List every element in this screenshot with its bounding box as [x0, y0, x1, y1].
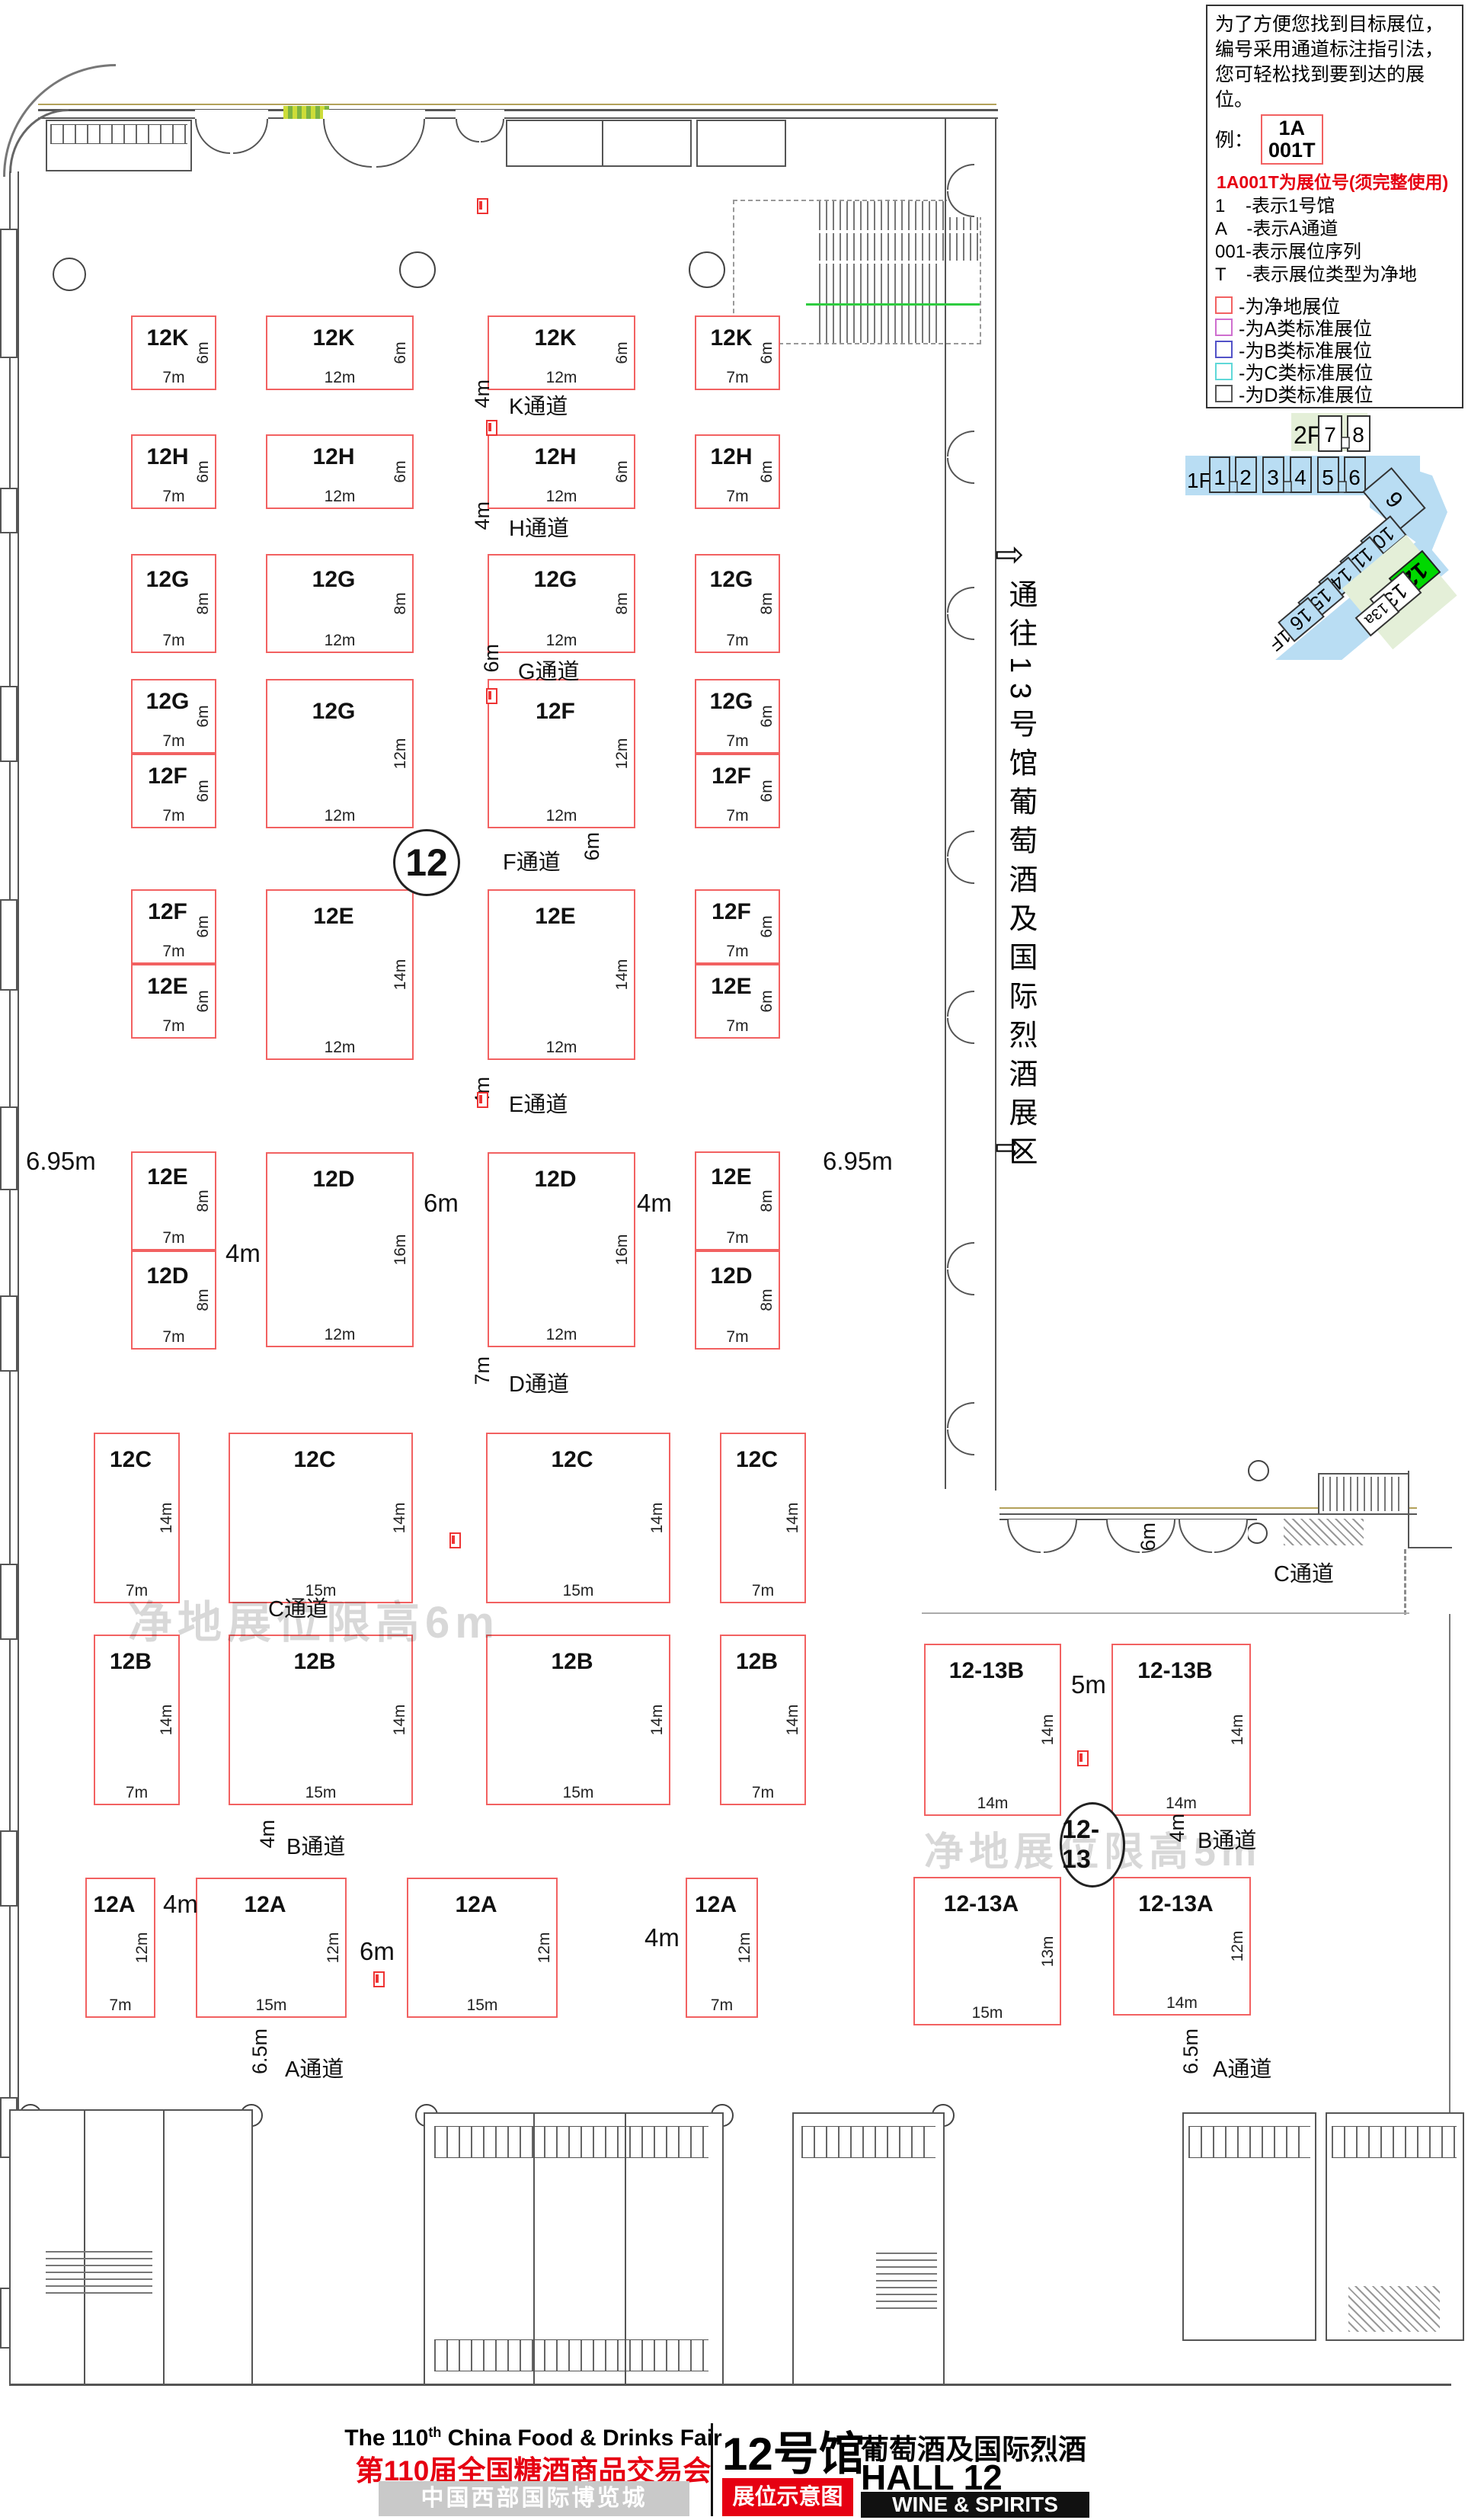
minimap-1f-label: 1F: [1187, 469, 1212, 492]
fire-note: 消防地井严禁遮挡: [1233, 403, 1373, 409]
footer-banner: The 110th China Food & Drinks Fair 第110届…: [0, 2417, 1468, 2520]
booth-id: 12-13B004T: [1113, 1659, 1237, 1683]
booth-12K-041T[interactable]: 12K041T12m6m: [488, 315, 635, 390]
dimension-label: 6m: [480, 644, 504, 673]
booth-width-dimension: 7m: [696, 943, 779, 961]
svg-text:4: 4: [1294, 466, 1306, 489]
fire-hydrant-icon: [477, 1092, 488, 1108]
booth-12H-038T[interactable]: 12H038T7m6m: [695, 434, 780, 509]
booth-12A-002T[interactable]: 12A002T15m12m: [196, 1878, 347, 2018]
main-entrance-door[interactable]: [323, 110, 425, 171]
booth-12C-012T[interactable]: 12C012T7m14m: [720, 1433, 806, 1603]
minimap-hall-4[interactable]: 4: [1290, 457, 1311, 492]
booth-id: 12E018T: [696, 1165, 766, 1189]
minimap-hall-8[interactable]: 8: [1348, 416, 1370, 451]
venue-name: 中国西部国际博览城: [379, 2481, 689, 2516]
booth-id: 12-13A002T: [1115, 1892, 1237, 1916]
corridor-door[interactable]: [1007, 1519, 1077, 1555]
aisle-label: B通道: [286, 1829, 345, 1861]
booth-type-swatch: [1215, 385, 1233, 402]
dimension-label: 4m: [225, 1239, 261, 1268]
booth-id: 12A004T: [687, 1893, 744, 1916]
booth-id: 12C012T: [721, 1448, 792, 1471]
svg-text:2: 2: [1239, 466, 1252, 489]
height-limit-watermark: 净地展位限高5m: [924, 1820, 1262, 1877]
aisle-label: D通道: [509, 1366, 569, 1398]
dimension-label: 6m: [360, 1937, 395, 1966]
booth-12E-023T[interactable]: 12E023T7m6m: [695, 964, 780, 1039]
legend-code-lines: 1 -表示1号馆A -表示A通道001-表示展位序列T -表示展位类型为净地: [1215, 195, 1454, 287]
booth-id: 12K042T: [696, 326, 766, 350]
booth-width-dimension: 7m: [133, 369, 215, 387]
booth-depth-dimension: 6m: [194, 705, 213, 727]
booth-width-dimension: 15m: [488, 1784, 669, 1802]
booth-width-dimension: 7m: [696, 732, 779, 751]
dimension-label: 6.5m: [1179, 2028, 1203, 2074]
hall-door[interactable]: [947, 431, 994, 484]
booth-type-swatch: [1215, 319, 1233, 336]
fire-hydrant-icon: [1077, 1750, 1089, 1766]
hall-door[interactable]: [947, 1402, 994, 1455]
booth-depth-dimension: 14m: [648, 1705, 667, 1736]
footer-divider: [711, 2423, 713, 2516]
booth-id: 12A001T: [87, 1893, 142, 1916]
dimension-label: 6m: [1137, 1523, 1160, 1551]
booth-width-dimension: 12m: [489, 632, 634, 650]
booth-12A-001T[interactable]: 12A001T7m12m: [85, 1878, 155, 2018]
booth-width-dimension: 12m: [489, 1039, 634, 1057]
venue-minimap[interactable]: 2F 7 8 1F 1 2 3 4 5: [1179, 408, 1468, 660]
booth-12E-014T[interactable]: 12E014T7m8m: [131, 1151, 216, 1250]
booth-type-swatch: [1215, 363, 1233, 380]
booth-id: 12G033T: [489, 568, 622, 591]
booth-depth-dimension: 8m: [194, 1190, 213, 1212]
booth-depth-dimension: 14m: [613, 959, 632, 991]
booth-width-dimension: 7m: [133, 1017, 215, 1036]
booth-depth-dimension: 14m: [158, 1705, 176, 1736]
fire-hydrant-icon: [373, 1971, 385, 1987]
booth-width-dimension: 15m: [915, 2004, 1060, 2022]
svg-text:1: 1: [1214, 466, 1226, 489]
booth-depth-dimension: 6m: [758, 780, 776, 802]
corridor-door[interactable]: [1106, 1519, 1248, 1555]
booth-depth-dimension: 6m: [194, 460, 213, 482]
booth-depth-dimension: 8m: [758, 1190, 776, 1212]
booth-12-13A-002T[interactable]: 12-13A002T14m12m: [1113, 1877, 1251, 2016]
booth-id: 12B005T: [95, 1650, 166, 1673]
booth-id: 12H035T: [133, 445, 203, 469]
booth-width-dimension: 15m: [230, 1784, 411, 1802]
hall-door[interactable]: [947, 1242, 994, 1295]
floor-plan-canvas: 12K039T7m6m12K040T12m6m12K041T12m6m12K04…: [0, 0, 1468, 2520]
booth-type-swatch: [1215, 296, 1233, 314]
aisle-label: H通道: [509, 511, 569, 543]
dimension-label: 6.5m: [248, 2028, 272, 2074]
dimension-label: 6.95m: [823, 1147, 893, 1176]
booth-id: 12G030T: [696, 690, 766, 713]
direction-arrow-up: ⇨: [995, 533, 1025, 575]
booth-depth-dimension: 13m: [1039, 1936, 1057, 1967]
booth-depth-dimension: 14m: [391, 1503, 409, 1534]
booth-12-13B-004T[interactable]: 12-13B004T14m14m: [1111, 1644, 1251, 1816]
legend-sample-booth: 1A 001T: [1261, 114, 1323, 165]
entrance-mat: [283, 106, 329, 119]
hall-door[interactable]: [947, 587, 994, 640]
booth-width-dimension: 7m: [87, 1996, 154, 2015]
booth-depth-dimension: 6m: [758, 990, 776, 1012]
legend-code-line: T -表示展位类型为净地: [1215, 264, 1454, 287]
booth-width-dimension: 12m: [489, 807, 634, 825]
booth-id: 12E022T: [489, 905, 622, 928]
booth-id: 12A003T: [408, 1893, 544, 1916]
fire-hydrant-icon: [449, 1532, 461, 1548]
booth-id: 12B007T: [488, 1650, 657, 1673]
legend-intro: 为了方便您找到目标展位，编号采用通道标注指引法，您可轻松找到要到达的展位。: [1215, 12, 1454, 113]
booth-width-dimension: 12m: [489, 1326, 634, 1344]
booth-12E-018T[interactable]: 12E018T7m8m: [695, 1151, 780, 1250]
booth-depth-dimension: 6m: [392, 341, 410, 363]
booth-depth-dimension: 14m: [648, 1503, 667, 1534]
booth-12F-028T[interactable]: 12F028T12m12m: [488, 679, 635, 828]
booth-width-dimension: 12m: [489, 488, 634, 506]
booth-12-13A-001T-A[interactable]: 12-13A001T-A15m13m: [913, 1877, 1061, 2025]
booth-id: 12C010T: [230, 1448, 399, 1471]
booth-depth-dimension: 14m: [158, 1503, 176, 1534]
booth-width-dimension: 12m: [267, 488, 412, 506]
booth-12G-027T[interactable]: 12G027T12m12m: [266, 679, 414, 828]
booth-12B-008T[interactable]: 12B008T7m14m: [720, 1635, 806, 1805]
booth-12G-032T[interactable]: 12G032T12m8m: [266, 554, 414, 653]
booth-width-dimension: 7m: [133, 943, 215, 961]
legend-booth-number-note: 1A001T为展位号(须完整使用): [1217, 168, 1454, 194]
svg-text:3: 3: [1267, 466, 1279, 489]
double-door[interactable]: [195, 110, 268, 157]
booth-12G-034T[interactable]: 12G034T7m8m: [695, 554, 780, 653]
booth-width-dimension: 7m: [133, 807, 215, 825]
dimension-label: 6m: [580, 832, 604, 861]
booth-12D-013T[interactable]: 12D013T7m8m: [131, 1250, 216, 1350]
booth-width-dimension: 15m: [488, 1582, 669, 1600]
booth-width-dimension: 7m: [696, 488, 779, 506]
booth-id: 12-13B003T: [926, 1659, 1047, 1683]
booth-12F-020T[interactable]: 12F020T7m6m: [131, 889, 216, 964]
booth-width-dimension: 7m: [696, 369, 779, 387]
legend-key-row: -为D类标准展位: [1215, 383, 1454, 405]
booth-depth-dimension: 6m: [758, 915, 776, 937]
booth-id: 12F029T: [696, 764, 766, 788]
booth-depth-dimension: 6m: [392, 460, 410, 482]
booth-depth-dimension: 12m: [736, 1932, 754, 1964]
minimap-hall-2[interactable]: 2: [1236, 457, 1256, 492]
hall-title-chinese: 12号馆: [722, 2417, 865, 2483]
booth-width-dimension: 7m: [696, 1229, 779, 1247]
booth-12E-021T[interactable]: 12E021T12m14m: [266, 889, 414, 1060]
legend-code-line: 1 -表示1号馆: [1215, 195, 1454, 218]
booth-12G-033T[interactable]: 12G033T12m8m: [488, 554, 635, 653]
hall-number-circle-12: 12: [393, 829, 460, 896]
booth-12C-009T[interactable]: 12C009T7m14m: [94, 1433, 180, 1603]
legend-color-key: -为净地展位-为A类标准展位-为B类标准展位-为C类标准展位-为D类标准展位: [1215, 294, 1454, 405]
dimension-label: 6m: [424, 1189, 459, 1218]
booth-12G-026T[interactable]: 12G026T7m6m: [131, 679, 216, 754]
booth-12E-022T[interactable]: 12E022T12m14m: [488, 889, 635, 1060]
booth-width-dimension: 14m: [926, 1795, 1060, 1813]
booth-id: 12C009T: [95, 1448, 166, 1471]
booth-id: 12-13A001T-A: [915, 1892, 1047, 1916]
booth-depth-dimension: 6m: [613, 460, 632, 482]
booth-12G-031T[interactable]: 12G031T7m8m: [131, 554, 216, 653]
booth-12H-036T[interactable]: 12H036T12m6m: [266, 434, 414, 509]
booth-depth-dimension: 12m: [1229, 1931, 1247, 1962]
dimension-label: 6.95m: [26, 1147, 96, 1176]
dimension-label: 4m: [256, 1820, 280, 1849]
aisle-label: E通道: [509, 1087, 568, 1119]
booth-width-dimension: 7m: [721, 1582, 804, 1600]
booth-depth-dimension: 14m: [784, 1705, 802, 1736]
minimap-2f-label: 2F: [1294, 421, 1322, 449]
booth-12C-010T[interactable]: 12C010T15m14m: [229, 1433, 413, 1603]
minimap-hall-5[interactable]: 5: [1318, 457, 1338, 492]
dimension-label: 7m: [471, 1356, 494, 1385]
direction-arrow-down: ⇨: [995, 1126, 1025, 1167]
booth-width-dimension: 7m: [721, 1784, 804, 1802]
booth-depth-dimension: 6m: [758, 460, 776, 482]
booth-id: 12A002T: [197, 1893, 333, 1916]
fire-hydrant-icon: [477, 198, 488, 214]
booth-id: 12C011T: [488, 1448, 657, 1471]
aisle-label: A通道: [285, 2051, 344, 2083]
height-limit-watermark: 净地展位限高6m: [128, 1587, 500, 1651]
dimension-label: 4m: [471, 501, 494, 530]
booth-id: 12D016T: [489, 1167, 622, 1191]
booth-id: 12E019T: [133, 975, 203, 998]
booth-depth-dimension: 14m: [391, 1705, 409, 1736]
booth-12K-042T[interactable]: 12K042T7m6m: [695, 315, 780, 390]
aisle-label: F通道: [503, 844, 561, 876]
booth-depth-dimension: 6m: [613, 341, 632, 363]
booth-depth-dimension: 6m: [758, 341, 776, 363]
booth-12F-029T[interactable]: 12F029T7m6m: [695, 754, 780, 828]
dimension-label: 4m: [163, 1890, 198, 1919]
booth-12F-025T[interactable]: 12F025T7m6m: [131, 754, 216, 828]
double-door[interactable]: [456, 110, 504, 146]
booth-id: 12G034T: [696, 568, 766, 591]
aisle-label: K通道: [509, 389, 568, 421]
booth-id: 12E021T: [267, 905, 400, 928]
booth-12G-030T[interactable]: 12G030T7m6m: [695, 679, 780, 754]
booth-12A-004T[interactable]: 12A004T7m12m: [686, 1878, 758, 2018]
booth-width-dimension: 7m: [133, 1229, 215, 1247]
booth-width-dimension: 7m: [696, 632, 779, 650]
booth-id: 12D017T: [696, 1264, 766, 1288]
dimension-label: 4m: [637, 1189, 672, 1218]
booth-12B-006T[interactable]: 12B006T15m14m: [229, 1635, 413, 1805]
booth-12F-024T[interactable]: 12F024T7m6m: [695, 889, 780, 964]
minimap-hall-3[interactable]: 3: [1263, 457, 1284, 492]
minimap-hall-7[interactable]: 7: [1319, 416, 1342, 451]
booth-12K-040T[interactable]: 12K040T12m6m: [266, 315, 414, 390]
booth-12K-039T[interactable]: 12K039T7m6m: [131, 315, 216, 390]
legend-panel: 为了方便您找到目标展位，编号采用通道标注指引法，您可轻松找到要到达的展位。 例：…: [1206, 5, 1463, 408]
booth-12E-019T[interactable]: 12E019T7m6m: [131, 964, 216, 1039]
aisle-label: G通道: [518, 654, 580, 686]
hall-door[interactable]: [947, 831, 994, 884]
legend-code-line: 001-表示展位序列: [1215, 241, 1454, 264]
booth-width-dimension: 12m: [267, 1326, 412, 1344]
booth-width-dimension: 7m: [687, 1996, 756, 2015]
hall-category-english: WINE & SPIRITS: [861, 2492, 1089, 2518]
booth-depth-dimension: 14m: [392, 959, 410, 991]
booth-12B-007T[interactable]: 12B007T15m14m: [486, 1635, 670, 1805]
booth-depth-dimension: 12m: [392, 738, 410, 770]
booth-id: 12D015T: [267, 1167, 400, 1191]
booth-width-dimension: 14m: [1113, 1795, 1249, 1813]
booth-id: 12K039T: [133, 326, 203, 350]
booth-depth-dimension: 8m: [392, 592, 410, 614]
minimap-hall-6[interactable]: 6: [1345, 457, 1365, 492]
booth-12A-003T[interactable]: 12A003T15m12m: [407, 1878, 558, 2018]
booth-type-swatch: [1215, 341, 1233, 358]
booth-width-dimension: 12m: [267, 1039, 412, 1057]
booth-width-dimension: 14m: [1115, 1994, 1249, 2012]
aisle-label: A通道: [1213, 2051, 1271, 2083]
booth-width-dimension: 7m: [133, 732, 215, 751]
legend-code-line: A -表示A通道: [1215, 218, 1454, 241]
booth-12C-011T[interactable]: 12C011T15m14m: [486, 1433, 670, 1603]
aisle-label: C通道: [1274, 1556, 1334, 1588]
booth-12H-035T[interactable]: 12H035T7m6m: [131, 434, 216, 509]
booth-12-13B-003T[interactable]: 12-13B003T14m14m: [924, 1644, 1061, 1816]
booth-12D-016T[interactable]: 12D016T12m16m: [488, 1152, 635, 1347]
booth-depth-dimension: 12m: [536, 1932, 554, 1964]
booth-id: 12F024T: [696, 900, 766, 924]
booth-12H-037T[interactable]: 12H037T12m6m: [488, 434, 635, 509]
booth-width-dimension: 7m: [696, 807, 779, 825]
booth-width-dimension: 12m: [267, 807, 412, 825]
booth-width-dimension: 15m: [408, 1996, 556, 2015]
corridor-direction-text: 通往13号馆葡萄酒及国际烈酒展区: [999, 579, 1041, 1175]
booth-depth-dimension: 16m: [392, 1234, 410, 1266]
booth-depth-dimension: 12m: [613, 738, 632, 770]
booth-id: 12F025T: [133, 764, 203, 788]
booth-12D-017T[interactable]: 12D017T7m8m: [695, 1250, 780, 1350]
booth-id: 12E014T: [133, 1165, 203, 1189]
booth-depth-dimension: 6m: [758, 705, 776, 727]
booth-depth-dimension: 12m: [325, 1932, 343, 1964]
booth-id: 12B008T: [721, 1650, 792, 1673]
booth-depth-dimension: 8m: [758, 592, 776, 614]
booth-id: 12G026T: [133, 690, 203, 713]
booth-id: 12H037T: [489, 445, 622, 469]
booth-depth-dimension: 8m: [758, 1289, 776, 1311]
booth-id: 12K040T: [267, 326, 400, 350]
booth-depth-dimension: 14m: [784, 1503, 802, 1534]
booth-depth-dimension: 6m: [194, 990, 213, 1012]
booth-width-dimension: 7m: [133, 1328, 215, 1346]
booth-width-dimension: 7m: [696, 1328, 779, 1346]
booth-12B-005T[interactable]: 12B005T7m14m: [94, 1635, 180, 1805]
hall-door[interactable]: [947, 164, 994, 217]
svg-text:6: 6: [1348, 466, 1361, 489]
booth-id: 12H036T: [267, 445, 400, 469]
booth-id: 12G032T: [267, 568, 400, 591]
minimap-hall-1[interactable]: 1: [1210, 457, 1230, 492]
booth-width-dimension: 12m: [267, 632, 412, 650]
hall-door[interactable]: [947, 991, 994, 1044]
legend-example-label: 例：: [1215, 125, 1253, 152]
booth-id: 12G027T: [267, 700, 400, 723]
booth-id: 12K041T: [489, 326, 622, 350]
svg-text:8: 8: [1352, 423, 1364, 447]
booth-width-dimension: 7m: [95, 1784, 178, 1802]
booth-width-dimension: 12m: [489, 369, 634, 387]
booth-depth-dimension: 16m: [613, 1234, 632, 1266]
booth-depth-dimension: 14m: [1229, 1715, 1247, 1746]
booth-width-dimension: 12m: [267, 369, 412, 387]
booth-depth-dimension: 14m: [1039, 1715, 1057, 1746]
booth-id: 12F028T: [489, 700, 622, 723]
booth-depth-dimension: 12m: [133, 1932, 152, 1964]
svg-text:7: 7: [1324, 423, 1336, 447]
booth-depth-dimension: 8m: [194, 1289, 213, 1311]
booth-depth-dimension: 6m: [194, 341, 213, 363]
booth-id: 12B006T: [230, 1650, 399, 1673]
booth-id: 12H038T: [696, 445, 766, 469]
fire-hydrant-icon: [486, 420, 497, 436]
booth-width-dimension: 7m: [696, 1017, 779, 1036]
dimension-label: 5m: [1071, 1670, 1106, 1699]
fire-hydrant-icon: [486, 688, 497, 704]
booth-width-dimension: 7m: [133, 632, 215, 650]
booth-id: 12F020T: [133, 900, 203, 924]
booth-width-dimension: 7m: [133, 488, 215, 506]
booth-width-dimension: 15m: [197, 1996, 345, 2015]
diagram-tag: 展位示意图: [722, 2478, 853, 2516]
booth-id: 12D013T: [133, 1264, 203, 1288]
booth-depth-dimension: 6m: [194, 915, 213, 937]
booth-id: 12G031T: [133, 568, 203, 591]
booth-depth-dimension: 8m: [194, 592, 213, 614]
dimension-label: 4m: [471, 379, 494, 408]
booth-12D-015T[interactable]: 12D015T12m16m: [266, 1152, 414, 1347]
booth-depth-dimension: 6m: [194, 780, 213, 802]
svg-text:5: 5: [1322, 466, 1334, 489]
booth-id: 12E023T: [696, 975, 766, 998]
dimension-label: 4m: [644, 1923, 680, 1952]
booth-depth-dimension: 8m: [613, 592, 632, 614]
